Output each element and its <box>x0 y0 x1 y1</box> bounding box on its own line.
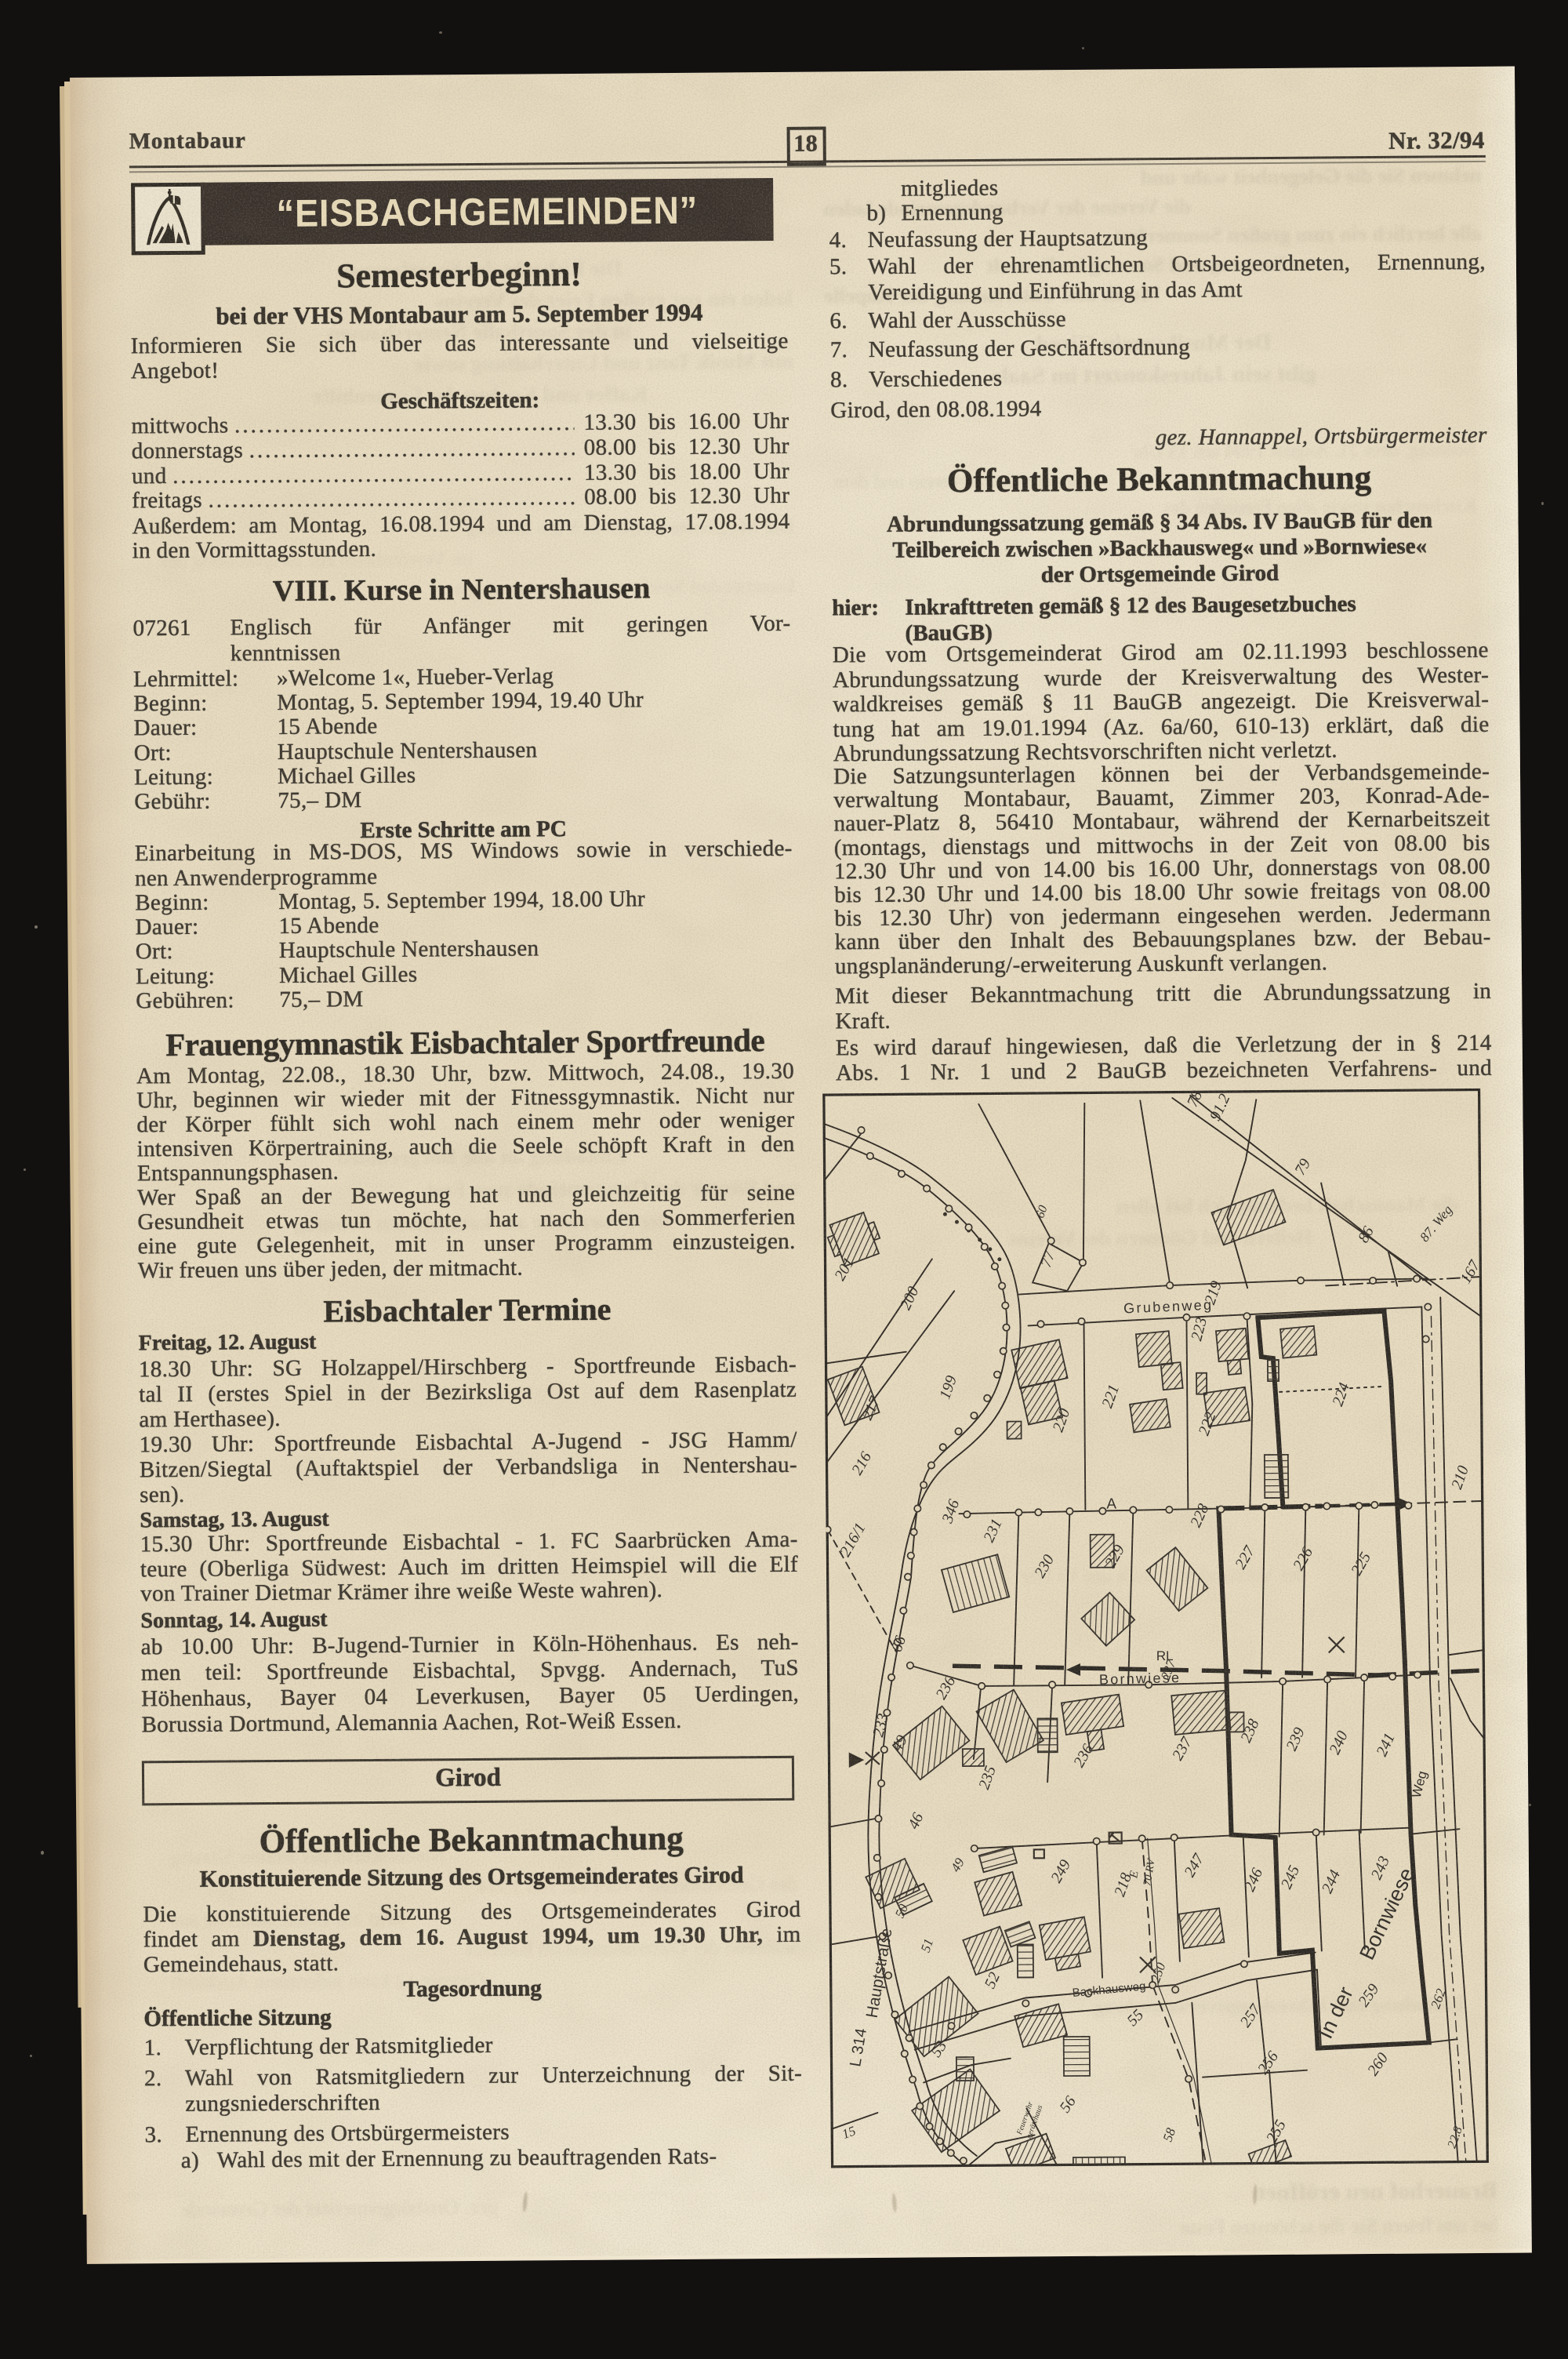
svg-text:Weg: Weg <box>1409 1769 1430 1799</box>
svg-text:259: 259 <box>1355 1981 1382 2010</box>
svg-text:257: 257 <box>1237 2001 1265 2030</box>
svg-text:Backhausweg: Backhausweg <box>1072 1979 1146 2000</box>
svg-text:249: 249 <box>1047 1857 1074 1886</box>
svg-text:216/1: 216/1 <box>837 1520 869 1559</box>
svg-text:Grubenweg: Grubenweg <box>1123 1297 1212 1317</box>
svg-text:241: 241 <box>1373 1731 1398 1759</box>
svg-text:15: 15 <box>840 2123 858 2142</box>
svg-text:Bornwiese: Bornwiese <box>1355 1864 1418 1964</box>
svg-text:216: 216 <box>848 1449 875 1478</box>
svg-text:231: 231 <box>980 1516 1005 1544</box>
svg-text:243: 243 <box>1368 1854 1393 1882</box>
svg-text:235: 235 <box>975 1764 1000 1792</box>
svg-text:223: 223 <box>1188 1315 1210 1343</box>
svg-text:225: 225 <box>1348 1550 1374 1579</box>
svg-text:228: 228 <box>1187 1501 1212 1529</box>
svg-text:79: 79 <box>1291 1156 1314 1178</box>
svg-text:46: 46 <box>905 1810 927 1831</box>
svg-text:22.8: 22.8 <box>1446 2125 1465 2150</box>
svg-text:49: 49 <box>948 1856 967 1875</box>
svg-text:L 314: L 314 <box>847 2027 870 2068</box>
svg-text:237: 237 <box>1169 1734 1196 1764</box>
svg-text:233: 233 <box>869 1712 892 1739</box>
svg-text:77: 77 <box>1037 1249 1059 1270</box>
svg-text:200: 200 <box>897 1284 922 1312</box>
svg-text:247: 247 <box>1181 1850 1207 1880</box>
svg-text:199: 199 <box>936 1373 960 1401</box>
svg-text:240: 240 <box>1326 1728 1351 1757</box>
svg-text:221: 221 <box>1098 1383 1123 1411</box>
svg-text:58: 58 <box>1160 2126 1179 2144</box>
svg-text:52: 52 <box>982 1970 1004 1991</box>
svg-text:56: 56 <box>1056 2093 1079 2116</box>
svg-text:66: 66 <box>888 1634 909 1654</box>
svg-text:51: 51 <box>918 1936 937 1954</box>
svg-text:91.2: 91.2 <box>1207 1092 1234 1124</box>
svg-text:230: 230 <box>1031 1552 1058 1581</box>
svg-text:245: 245 <box>1278 1863 1303 1891</box>
svg-text:239: 239 <box>1283 1725 1308 1753</box>
svg-text:210: 210 <box>1448 1463 1472 1492</box>
svg-text:260: 260 <box>1364 2050 1392 2079</box>
svg-text:226: 226 <box>1290 1544 1316 1573</box>
svg-text:60: 60 <box>1033 1204 1050 1220</box>
svg-text:227: 227 <box>1232 1543 1258 1572</box>
svg-text:55: 55 <box>1123 2006 1147 2030</box>
svg-text:346: 346 <box>938 1497 963 1526</box>
svg-text:244: 244 <box>1319 1867 1344 1896</box>
svg-text:224: 224 <box>1329 1380 1353 1408</box>
svg-text:A: A <box>1106 1496 1116 1513</box>
svg-text:87. Weg: 87. Weg <box>1417 1202 1455 1245</box>
